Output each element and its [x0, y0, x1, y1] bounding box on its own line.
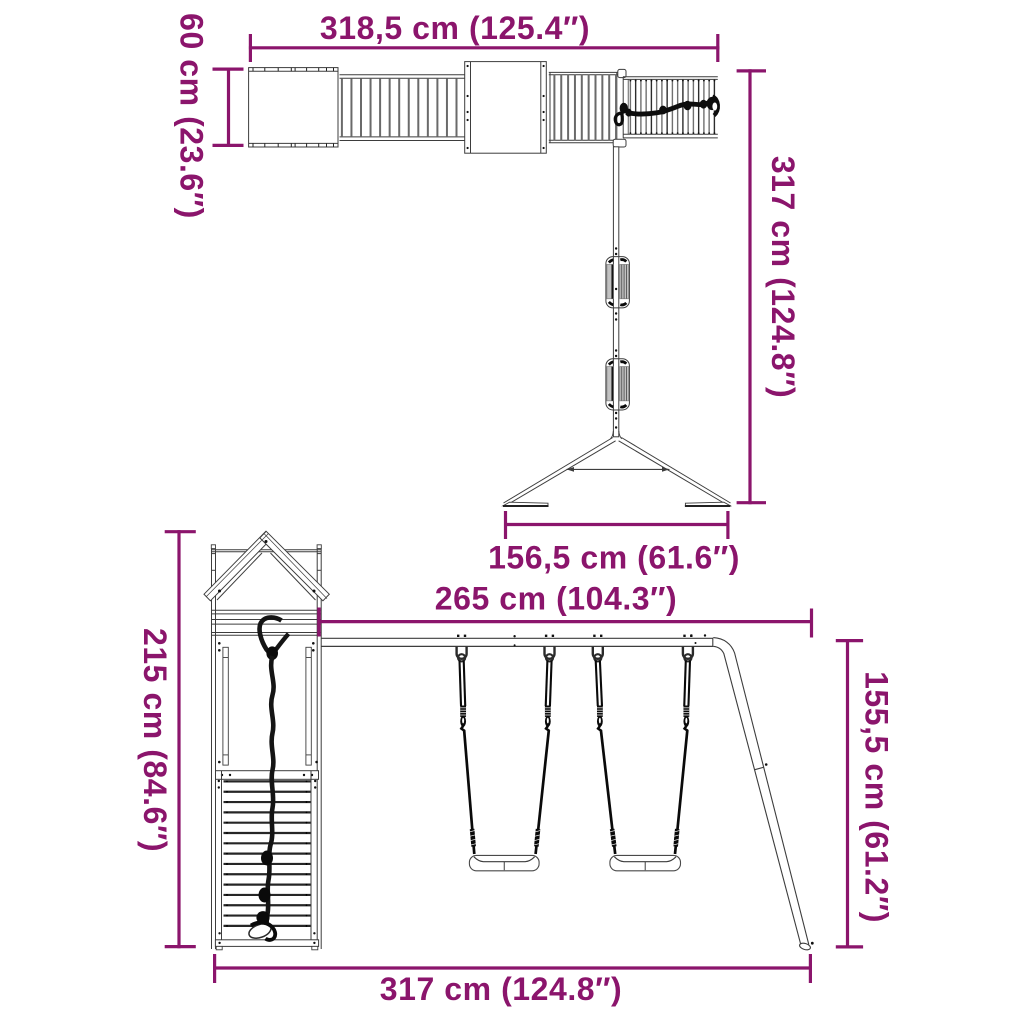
- svg-text:60 cm (23.6″): 60 cm (23.6″): [174, 13, 210, 219]
- svg-text:317 cm (124.8″): 317 cm (124.8″): [765, 156, 801, 398]
- svg-text:317 cm (124.8″): 317 cm (124.8″): [380, 971, 622, 1007]
- svg-text:265 cm (104.3″): 265 cm (104.3″): [435, 581, 677, 617]
- svg-text:156,5 cm (61.6″): 156,5 cm (61.6″): [488, 540, 740, 576]
- svg-text:215 cm (84.6″): 215 cm (84.6″): [137, 628, 173, 852]
- svg-text:318,5 cm (125.4″): 318,5 cm (125.4″): [320, 10, 590, 46]
- svg-text:155,5 cm (61.2″): 155,5 cm (61.2″): [859, 671, 895, 923]
